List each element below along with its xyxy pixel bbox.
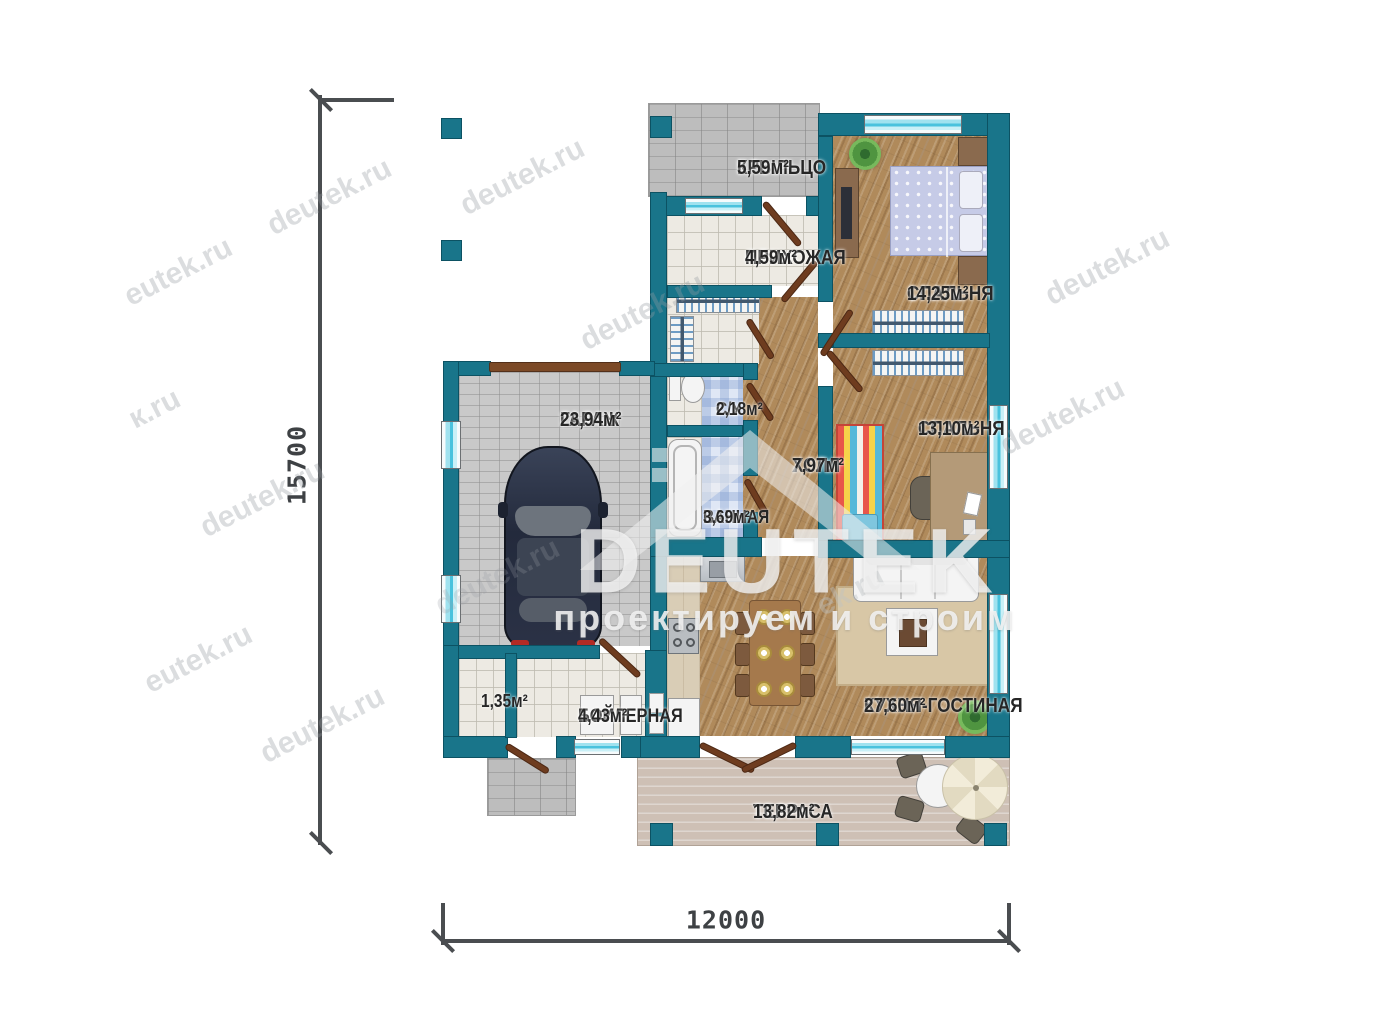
wall	[833, 333, 990, 348]
wall	[945, 736, 1010, 758]
dining-chair	[735, 674, 750, 697]
window	[441, 421, 461, 469]
window	[574, 739, 620, 755]
wall	[619, 361, 655, 376]
place-setting	[756, 681, 772, 697]
terrace-post	[816, 823, 839, 846]
wall	[795, 736, 851, 758]
room-area: 2,18м²	[716, 400, 763, 419]
dimension-tick	[320, 98, 394, 102]
pillow	[959, 171, 983, 209]
watermark-text: deutek.ru	[262, 151, 398, 243]
wardrobe-rack	[670, 316, 694, 362]
room-area: 5,59м²	[737, 158, 789, 179]
watermark-text: eutek.ru	[139, 617, 258, 700]
watermark-text: eutek.ru	[119, 230, 238, 313]
dining-chair	[800, 674, 815, 697]
wall	[640, 736, 700, 758]
floor-plan-canvas: КРЫЛЬЦО 5,59м² ПРИХОЖАЯ 4,59м² СПАЛЬНЯ 1…	[0, 0, 1400, 1015]
wall	[650, 363, 758, 377]
pillow	[959, 214, 983, 252]
wall	[556, 736, 576, 758]
umbrella-pole	[973, 785, 979, 791]
window	[864, 115, 962, 134]
porch-post	[650, 116, 672, 138]
tv	[841, 187, 852, 239]
watermark-text: к.ru	[123, 382, 186, 437]
blanket-fold	[946, 167, 948, 257]
watermark-text: deutek.ru	[455, 131, 591, 223]
plant-icon	[849, 138, 881, 170]
site-post	[441, 118, 462, 139]
watermark-text: deutek.ru	[255, 679, 391, 771]
car-mirror	[498, 502, 508, 518]
wall	[443, 736, 508, 758]
umbrella-icon	[942, 754, 1008, 820]
bedroom1-dresser	[835, 168, 859, 258]
place-setting	[779, 681, 795, 697]
entry-step	[487, 758, 576, 816]
watermark-text: deutek.ru	[995, 371, 1131, 463]
wardrobe-rack	[872, 350, 964, 376]
wall	[743, 363, 758, 380]
room-area: 27,60м²	[864, 696, 926, 717]
window	[685, 198, 743, 214]
dimension-line-horizontal	[441, 939, 1011, 943]
terrace-post	[650, 823, 673, 846]
porch-floor	[648, 103, 820, 197]
site-post	[441, 240, 462, 261]
window	[851, 739, 945, 755]
logo-tagline: проектируем и строим	[553, 597, 1016, 639]
room-area: 1,35м²	[481, 691, 528, 712]
nightstand	[958, 137, 988, 166]
bedroom1-double-bed	[890, 166, 988, 256]
dimension-label-horizontal: 12000	[686, 906, 766, 935]
terrace-post	[984, 823, 1007, 846]
nightstand	[958, 256, 988, 285]
room-area: 13,82м²	[753, 802, 815, 823]
room-area: 14,25м²	[907, 284, 969, 305]
room-area: 4,43м²	[578, 706, 627, 727]
room-area: 4,59м²	[745, 248, 797, 269]
toilet-tank	[669, 375, 681, 401]
watermark-text: deutek.ru	[1040, 221, 1176, 313]
garage-gate	[489, 362, 621, 372]
